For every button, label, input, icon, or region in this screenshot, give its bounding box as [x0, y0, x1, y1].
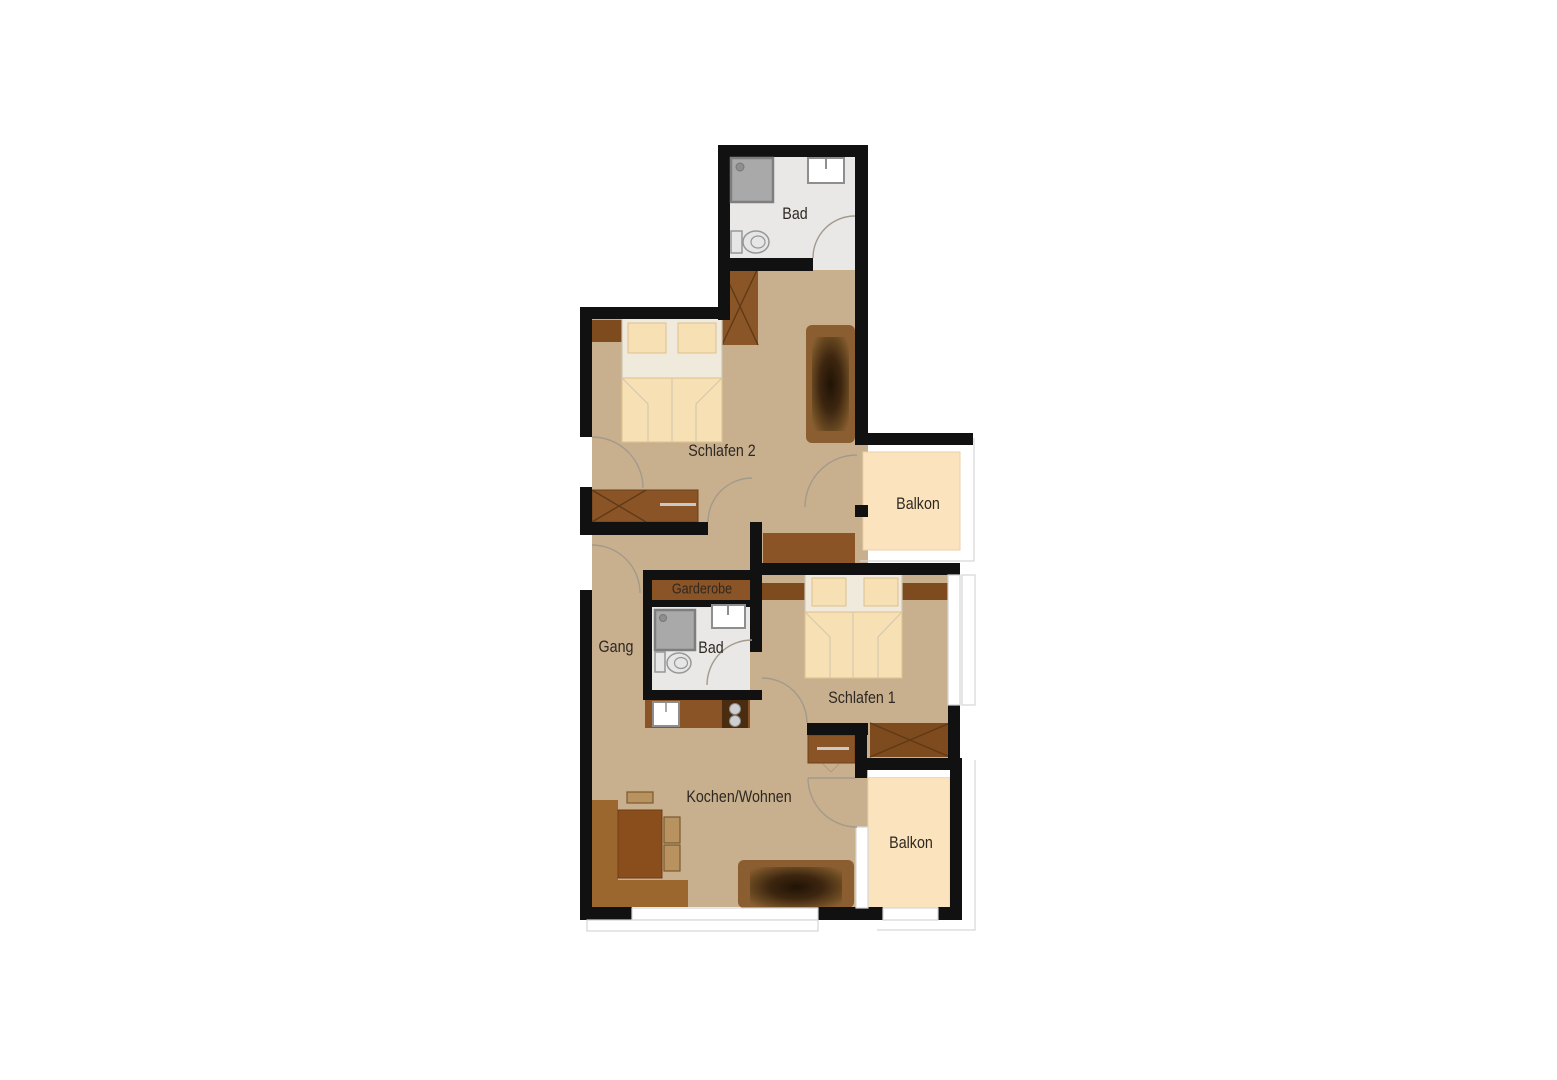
- kitchen-counter: [645, 700, 750, 728]
- headboard-schlafen1-left: [762, 583, 805, 600]
- chair: [664, 817, 680, 843]
- window-frame-outer: [962, 575, 975, 705]
- wall: [855, 145, 868, 445]
- room-label-bad-top: Bad: [782, 204, 807, 224]
- wall: [856, 758, 952, 770]
- room-label-balkon-top: Balkon: [896, 494, 940, 514]
- wall: [643, 570, 752, 580]
- headboard-schlafen2: [592, 320, 622, 342]
- sofa-schlafen2: [806, 325, 855, 443]
- room-label-bad-inner: Bad: [698, 638, 723, 658]
- sofa-living: [738, 860, 854, 908]
- wall: [643, 690, 762, 700]
- room-label-balkon-bottom: Balkon: [889, 833, 933, 853]
- window-living-south: [632, 908, 818, 920]
- wall: [948, 705, 960, 760]
- wall: [868, 433, 973, 445]
- window-sill: [587, 920, 818, 931]
- floor-bath-top-doorgap: [813, 257, 855, 272]
- sideboard-schlafen2: [592, 490, 698, 522]
- wall: [718, 145, 868, 157]
- wall: [718, 145, 730, 320]
- dining-table: [618, 810, 662, 878]
- bed-schlafen1: [805, 573, 902, 678]
- headboard-schlafen1-right: [902, 583, 948, 600]
- chair: [627, 792, 653, 803]
- wall: [643, 570, 652, 700]
- room-label-schlafen1: Schlafen 1: [828, 688, 895, 708]
- bed-schlafen2: [622, 318, 722, 442]
- wall: [855, 505, 868, 517]
- window-schlafen1-east: [948, 575, 960, 705]
- room-label-schlafen2: Schlafen 2: [688, 441, 755, 461]
- room-label-kochen-wohnen: Kochen/Wohnen: [686, 787, 791, 807]
- wall: [718, 258, 813, 271]
- wall: [580, 307, 730, 319]
- wall: [818, 907, 883, 920]
- shower-head-icon: [660, 615, 667, 622]
- floor-balcony2-door-strip: [855, 778, 868, 827]
- shower-head-icon: [736, 163, 744, 171]
- window-living-east: [856, 827, 868, 908]
- wall: [580, 307, 592, 437]
- wardrobe-strip: [763, 533, 855, 563]
- wall: [950, 758, 962, 920]
- wall: [938, 907, 962, 920]
- wall: [750, 522, 762, 652]
- wall: [580, 590, 592, 920]
- room-label-gang: Gang: [599, 637, 634, 657]
- wall: [580, 907, 632, 920]
- toilet-top: [731, 231, 769, 253]
- toilet-inner: [655, 652, 691, 673]
- floorplan-canvas: Bad Schlafen 2 Balkon Garderobe Gang Bad…: [0, 0, 1557, 1080]
- wall: [750, 563, 960, 575]
- window-balcony-south: [883, 908, 938, 920]
- balcony-bottom-gap: [868, 770, 950, 777]
- floorplan-drawing: [0, 0, 1557, 1080]
- wardrobe-schlafen1: [870, 723, 950, 757]
- wall: [580, 522, 708, 535]
- chair: [664, 845, 680, 871]
- room-label-garderobe: Garderobe: [672, 581, 732, 598]
